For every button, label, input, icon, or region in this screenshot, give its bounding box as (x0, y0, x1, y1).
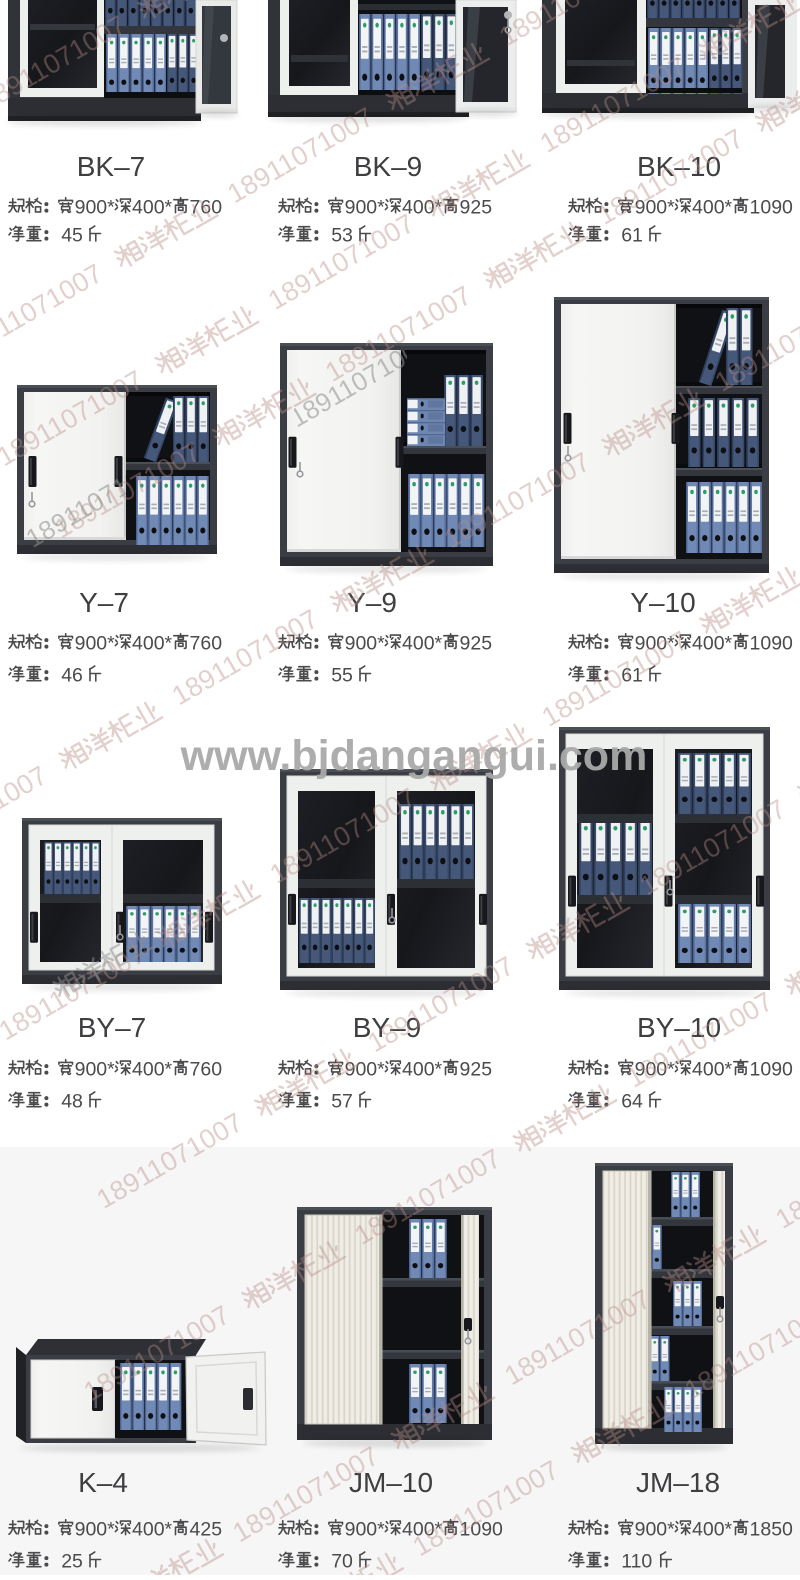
svg-text:760: 760 (190, 1059, 223, 1081)
svg-text:900*: 900* (345, 633, 386, 655)
svg-text:64: 64 (621, 1091, 643, 1113)
svg-text:900*: 900* (345, 1519, 386, 1541)
svg-text:900*: 900* (345, 197, 386, 219)
svg-text:400*: 400* (132, 1059, 173, 1081)
svg-text:425: 425 (190, 1519, 223, 1541)
svg-text:925: 925 (460, 1059, 493, 1081)
svg-text:48: 48 (61, 1091, 83, 1113)
svg-text:BK–9: BK–9 (354, 151, 423, 182)
svg-text:400*: 400* (692, 197, 733, 219)
svg-text:400*: 400* (132, 197, 173, 219)
svg-text:1090: 1090 (750, 197, 794, 219)
svg-text:25: 25 (61, 1551, 83, 1573)
svg-text:57: 57 (331, 1091, 353, 1113)
svg-text:Y–10: Y–10 (630, 587, 695, 618)
svg-text:K–4: K–4 (78, 1467, 128, 1498)
svg-text:925: 925 (460, 633, 493, 655)
svg-text:70: 70 (331, 1551, 353, 1573)
svg-text:110: 110 (621, 1551, 652, 1573)
svg-text:55: 55 (331, 665, 353, 687)
svg-text:BY–7: BY–7 (78, 1012, 147, 1043)
svg-text:JM–18: JM–18 (636, 1467, 720, 1498)
svg-text:900*: 900* (75, 1059, 116, 1081)
svg-text:900*: 900* (635, 1519, 676, 1541)
svg-text:1090: 1090 (750, 1059, 794, 1081)
svg-text:900*: 900* (75, 633, 116, 655)
svg-text:1850: 1850 (750, 1519, 794, 1541)
svg-text:400*: 400* (692, 1059, 733, 1081)
svg-text:400*: 400* (402, 1059, 443, 1081)
svg-text:BK–7: BK–7 (77, 151, 146, 182)
svg-text:www.bjdangangui.com: www.bjdangangui.com (180, 732, 648, 780)
svg-text:Y–7: Y–7 (79, 587, 129, 618)
svg-text:1090: 1090 (750, 633, 794, 655)
svg-text:400*: 400* (692, 1519, 733, 1541)
svg-text:400*: 400* (402, 633, 443, 655)
svg-text:400*: 400* (692, 633, 733, 655)
svg-text:400*: 400* (132, 1519, 173, 1541)
svg-text:61: 61 (621, 225, 643, 247)
svg-text:760: 760 (190, 633, 223, 655)
svg-text:900*: 900* (75, 1519, 116, 1541)
svg-text:900*: 900* (75, 197, 116, 219)
svg-text:925: 925 (460, 197, 493, 219)
svg-text:46: 46 (61, 665, 83, 687)
svg-text:45: 45 (61, 225, 83, 247)
svg-text:400*: 400* (132, 633, 173, 655)
